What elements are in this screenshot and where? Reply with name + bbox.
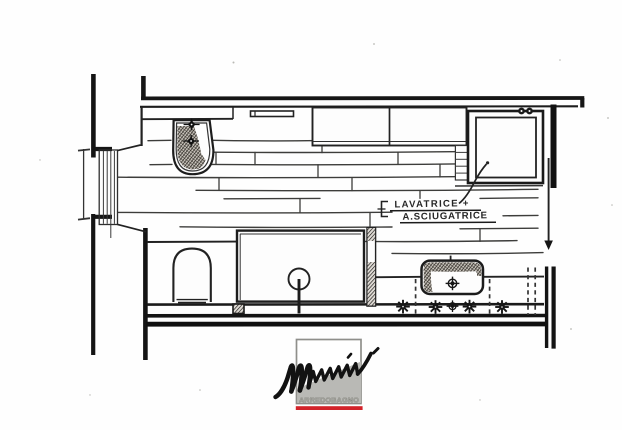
svg-text:LAVATRICE +: LAVATRICE +	[394, 198, 470, 210]
svg-text:ARREDOBAGNO: ARREDOBAGNO	[299, 396, 359, 405]
svg-text:A.SCIUGATRICE: A.SCIUGATRICE	[402, 210, 488, 222]
